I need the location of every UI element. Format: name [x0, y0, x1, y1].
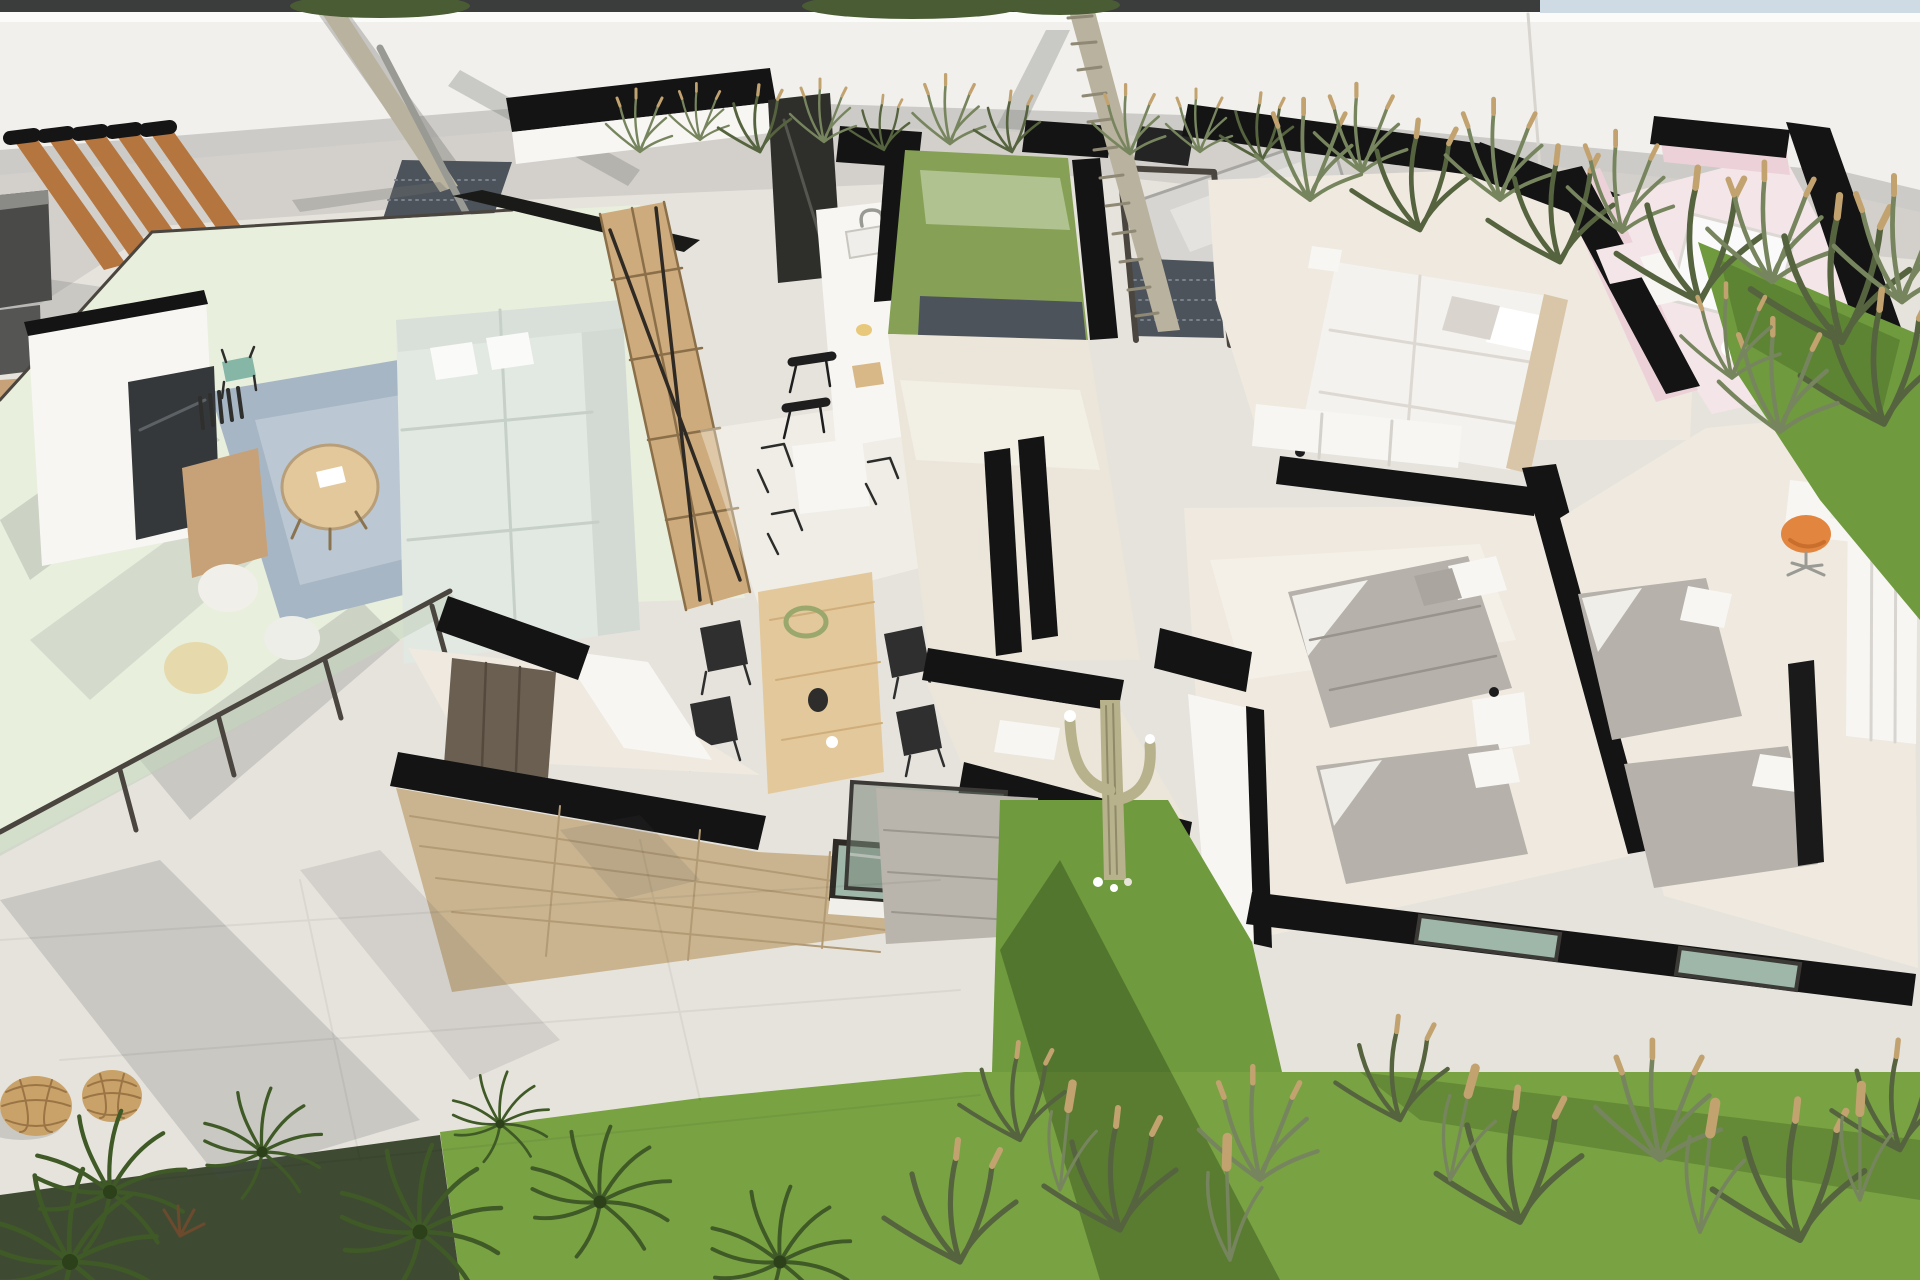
- dining-chair: [896, 704, 942, 756]
- pillow: [1468, 748, 1520, 788]
- cactus-flower: [1064, 710, 1076, 722]
- pebble: [1093, 877, 1103, 887]
- pebble: [1124, 878, 1132, 886]
- breakfast-table: [792, 438, 870, 514]
- sideboard: [182, 448, 268, 578]
- sofa-pillow: [430, 342, 478, 380]
- service-cabinets: [444, 658, 556, 778]
- dining-chair: [700, 620, 748, 672]
- pebble: [1110, 884, 1118, 892]
- nightstand: [1472, 692, 1530, 752]
- table-cup: [826, 736, 838, 748]
- sky-sliver: [1540, 0, 1920, 13]
- courtyard-gravel: [918, 296, 1086, 340]
- master-nightstand: [1308, 246, 1342, 272]
- table-lamp: [1489, 687, 1499, 697]
- pouf: [198, 564, 258, 612]
- pergola-slat-caps: [10, 127, 170, 138]
- courtyard-light: [920, 170, 1070, 230]
- dining-table: [758, 572, 884, 794]
- floorplan-render: [0, 0, 1920, 1280]
- table-vase: [808, 688, 828, 712]
- dining-chair: [884, 626, 930, 678]
- island-bowl: [856, 324, 872, 336]
- pouf: [164, 642, 228, 694]
- cactus-flower: [1145, 734, 1155, 744]
- sofa-pillow: [486, 332, 534, 370]
- pouf: [264, 616, 320, 660]
- cutting-board: [852, 362, 884, 388]
